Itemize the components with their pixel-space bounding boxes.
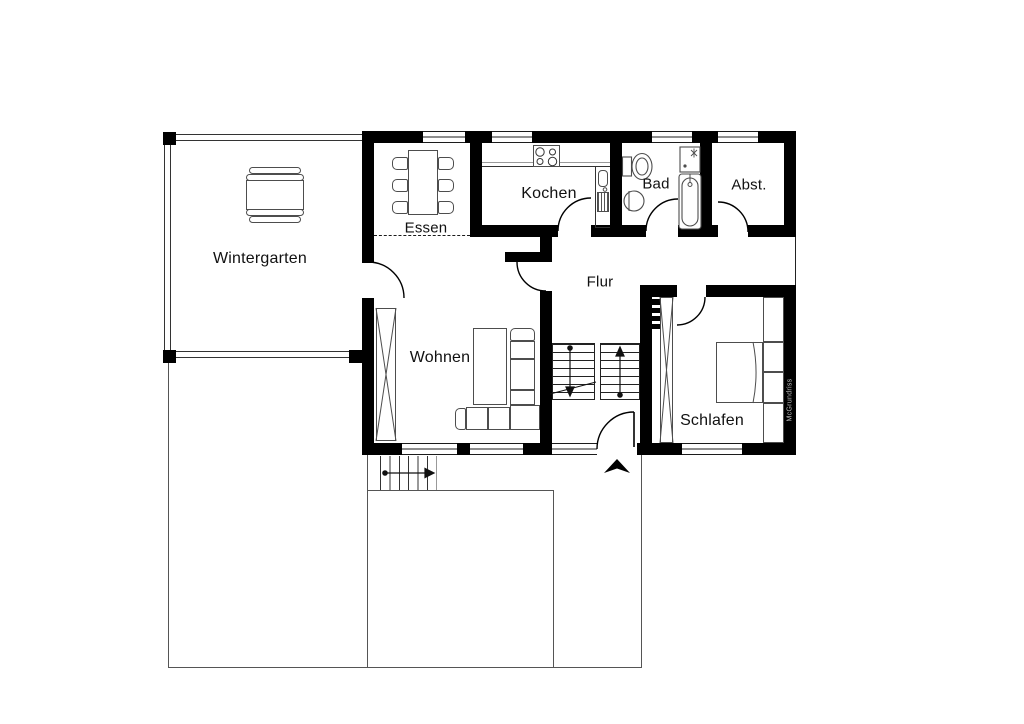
sink-icon [598, 170, 608, 187]
wall-segment [784, 285, 796, 455]
bench-icon [249, 167, 301, 174]
wall-segment [362, 298, 374, 455]
stove-icon [533, 145, 560, 167]
glass-wall [176, 134, 362, 141]
wall-segment [465, 131, 492, 143]
staircase-up [600, 343, 640, 400]
room-label-schlafen: Schlafen [680, 412, 744, 430]
room-label-wohnen: Wohnen [410, 349, 471, 367]
wall-segment [748, 225, 784, 237]
terrace-outline [367, 490, 554, 491]
dining-chair-icon [392, 201, 408, 214]
wall-segment [652, 443, 682, 455]
kitchen-counter [595, 227, 610, 228]
shower-icon [680, 147, 700, 172]
window [652, 131, 692, 143]
wall-segment [692, 131, 718, 143]
pillow-icon [763, 372, 784, 403]
window [718, 131, 758, 143]
terrace-outline [367, 455, 368, 668]
wall-segment [622, 225, 646, 237]
terrace-outline [641, 455, 642, 668]
wall-segment [470, 143, 482, 237]
bed-icon [716, 342, 763, 403]
bench-icon [246, 209, 304, 216]
table-icon [246, 180, 304, 210]
glass-wall [176, 351, 349, 358]
wall-segment [678, 225, 700, 237]
sofa-icon [510, 390, 535, 405]
sofa-icon [488, 407, 510, 430]
staircase-down [552, 343, 595, 400]
window [402, 443, 457, 455]
entrance-arrow-icon [604, 459, 630, 473]
wall-segment [712, 225, 718, 237]
glass-wall-post [349, 350, 362, 363]
coffee-table-icon [473, 328, 507, 405]
glass-wall-post [163, 132, 176, 145]
wall-segment [362, 131, 374, 263]
sink-drain-icon [603, 188, 607, 192]
sofa-icon [510, 405, 540, 430]
wall-segment [523, 443, 552, 455]
door-arc-schlafen [677, 297, 705, 325]
window [423, 131, 465, 143]
wall-segment [652, 285, 677, 297]
room-label-essen: Essen [405, 220, 448, 237]
terrace-outline [553, 490, 554, 668]
dining-chair-icon [438, 201, 454, 214]
sofa-icon [455, 408, 466, 430]
window [682, 443, 742, 455]
door-arc-abstellraum [718, 202, 748, 232]
room-label-kochen: Kochen [521, 185, 576, 203]
room-label-wintergarten: Wintergarten [213, 250, 307, 268]
dining-chair-icon [392, 157, 408, 170]
terrace-outline [168, 363, 169, 668]
washbasin-icon [624, 191, 644, 211]
room-label-flur: Flur [587, 274, 614, 291]
door-arc-bad [646, 199, 678, 231]
shower-head-icon [691, 149, 697, 158]
bathtub-icon [679, 174, 701, 229]
sofa-icon [466, 407, 488, 430]
sofa-icon [510, 341, 535, 359]
window [552, 443, 597, 455]
wall-segment [482, 225, 558, 237]
wardrobe-icon [763, 403, 784, 443]
dining-chair-icon [392, 179, 408, 192]
kitchen-counter [595, 166, 596, 227]
room-label-abstellraum: Abst. [731, 177, 766, 194]
heater-icon [376, 308, 396, 441]
wall-segment [610, 143, 622, 237]
wall-segment [784, 131, 796, 237]
wall-segment [540, 237, 552, 262]
floor-plan: Wintergarten Essen Kochen Bad Abst. Flur… [0, 0, 1024, 724]
toilet-icon [636, 158, 648, 175]
glass-wall [164, 145, 171, 350]
sofa-icon [510, 328, 535, 341]
wall-segment [742, 443, 796, 455]
wall-segment [457, 443, 470, 455]
window [470, 443, 523, 455]
wall-segment [532, 131, 652, 143]
window [784, 237, 796, 285]
terrace-outline [168, 667, 642, 668]
dining-chair-icon [438, 179, 454, 192]
pillow-icon [763, 342, 784, 372]
wall-segment [505, 252, 540, 262]
sofa-icon [510, 359, 535, 390]
wall-segment [540, 291, 552, 443]
room-label-bad: Bad [642, 176, 669, 193]
door-arc-entrance [597, 412, 634, 449]
door-arc-wintergarten [368, 262, 404, 298]
wardrobe-icon [660, 297, 673, 443]
wall-segment [706, 285, 784, 297]
shower-drain-icon [683, 164, 686, 167]
bench-icon [249, 216, 301, 223]
dining-chair-icon [438, 157, 454, 170]
bathtub-tap-icon [688, 183, 692, 187]
wall-segment [362, 443, 402, 455]
dishwasher-icon [597, 192, 609, 212]
exterior-stairs [380, 456, 437, 490]
watermark-label: McGrundriss [787, 379, 794, 422]
toilet-icon [623, 157, 632, 176]
window [492, 131, 532, 143]
wall-segment [700, 143, 712, 237]
bathtub-icon [682, 178, 698, 226]
wardrobe-icon [763, 297, 784, 342]
dining-table-icon [408, 150, 438, 215]
glass-wall-post [163, 350, 176, 363]
door-arc-wohnen [517, 262, 546, 291]
